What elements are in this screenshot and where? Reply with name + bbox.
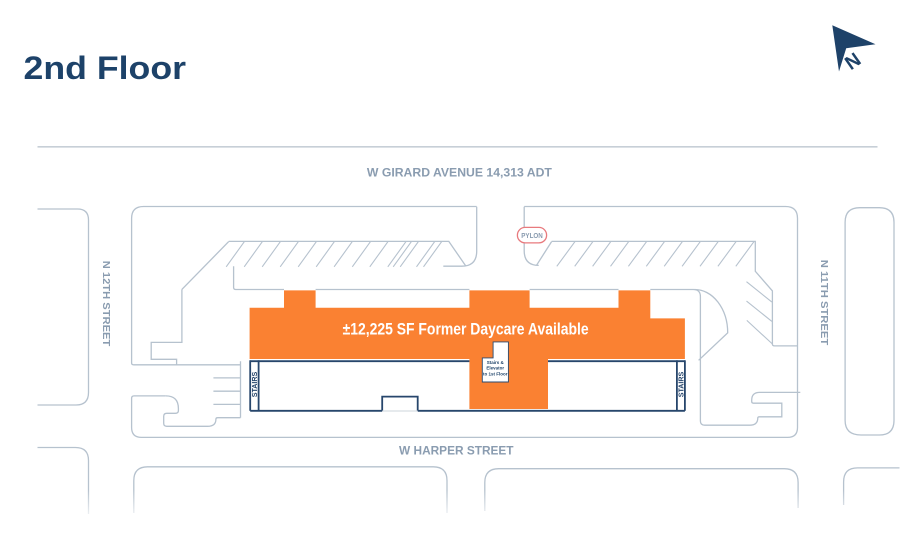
svg-text:N 12TH STREET: N 12TH STREET bbox=[100, 261, 112, 347]
svg-text:Stairs &: Stairs & bbox=[487, 360, 505, 365]
svg-text:STAIRS: STAIRS bbox=[250, 372, 259, 398]
svg-text:±12,225 SF Former Daycare Avai: ±12,225 SF Former Daycare Available bbox=[343, 320, 589, 338]
svg-text:N 11TH STREET: N 11TH STREET bbox=[818, 260, 830, 346]
svg-text:to 1st Floor: to 1st Floor bbox=[483, 371, 508, 376]
svg-text:W GIRARD AVENUE 14,313 ADT: W GIRARD AVENUE 14,313 ADT bbox=[367, 166, 552, 180]
svg-text:2nd Floor: 2nd Floor bbox=[24, 50, 187, 86]
svg-text:PYLON: PYLON bbox=[521, 231, 543, 240]
svg-text:STAIRS: STAIRS bbox=[677, 372, 686, 398]
svg-text:W HARPER STREET: W HARPER STREET bbox=[399, 444, 514, 458]
svg-text:Elevator: Elevator bbox=[486, 366, 504, 371]
